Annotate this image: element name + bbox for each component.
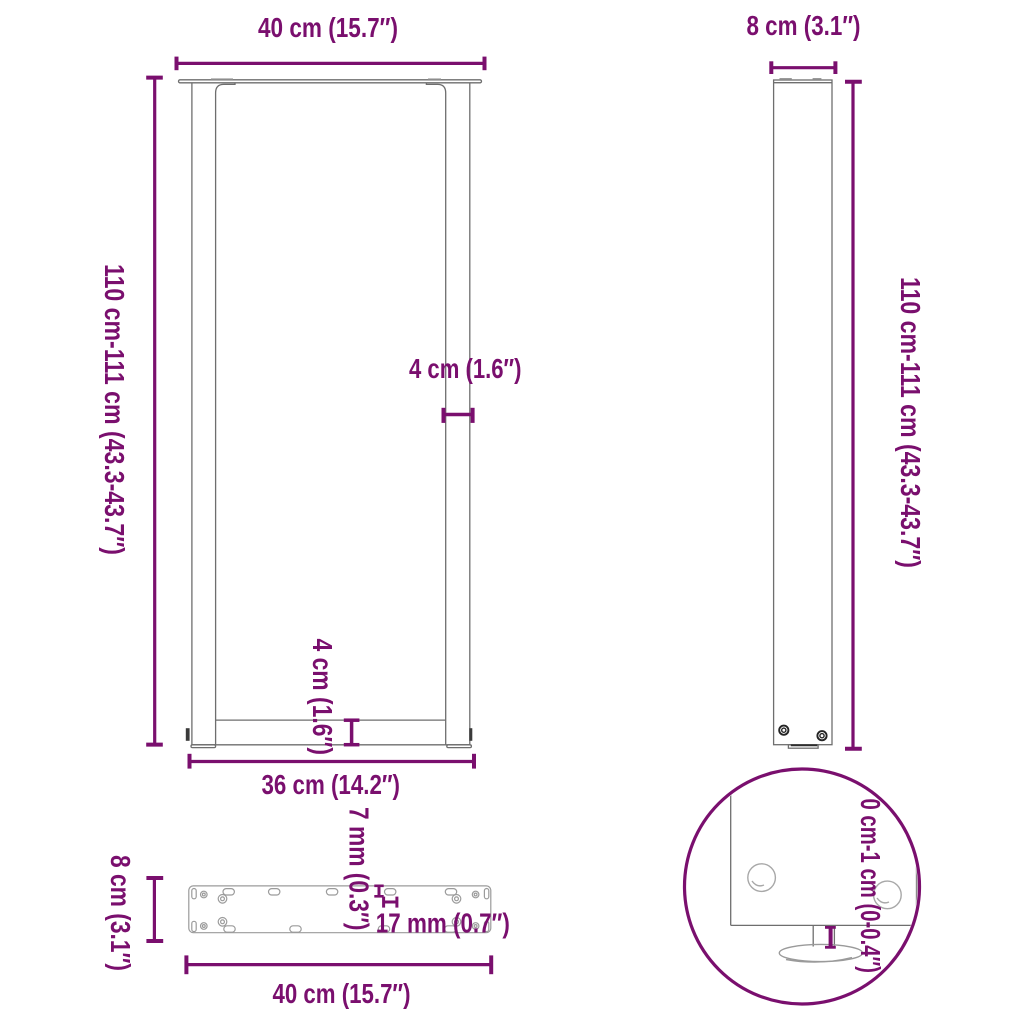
- svg-text:40 cm (15.7″): 40 cm (15.7″): [273, 978, 411, 1009]
- svg-text:4 cm (1.6″): 4 cm (1.6″): [409, 353, 522, 384]
- svg-text:110 cm-111 cm (43.3-43.7″): 110 cm-111 cm (43.3-43.7″): [99, 264, 130, 555]
- svg-text:7 mm (0.3″): 7 mm (0.3″): [344, 807, 375, 931]
- svg-text:40 cm (15.7″): 40 cm (15.7″): [258, 12, 398, 43]
- svg-text:8 cm (3.1″): 8 cm (3.1″): [105, 855, 136, 971]
- svg-text:8 cm (3.1″): 8 cm (3.1″): [747, 10, 861, 41]
- svg-text:17 mm (0.7″): 17 mm (0.7″): [376, 908, 510, 939]
- svg-text:36 cm (14.2″): 36 cm (14.2″): [262, 769, 401, 800]
- svg-text:4 cm (1.6″): 4 cm (1.6″): [307, 639, 338, 756]
- svg-text:0 cm-1 cm (0-0.4″): 0 cm-1 cm (0-0.4″): [855, 799, 886, 974]
- svg-text:110 cm-111 cm (43.3-43.7″): 110 cm-111 cm (43.3-43.7″): [895, 277, 926, 568]
